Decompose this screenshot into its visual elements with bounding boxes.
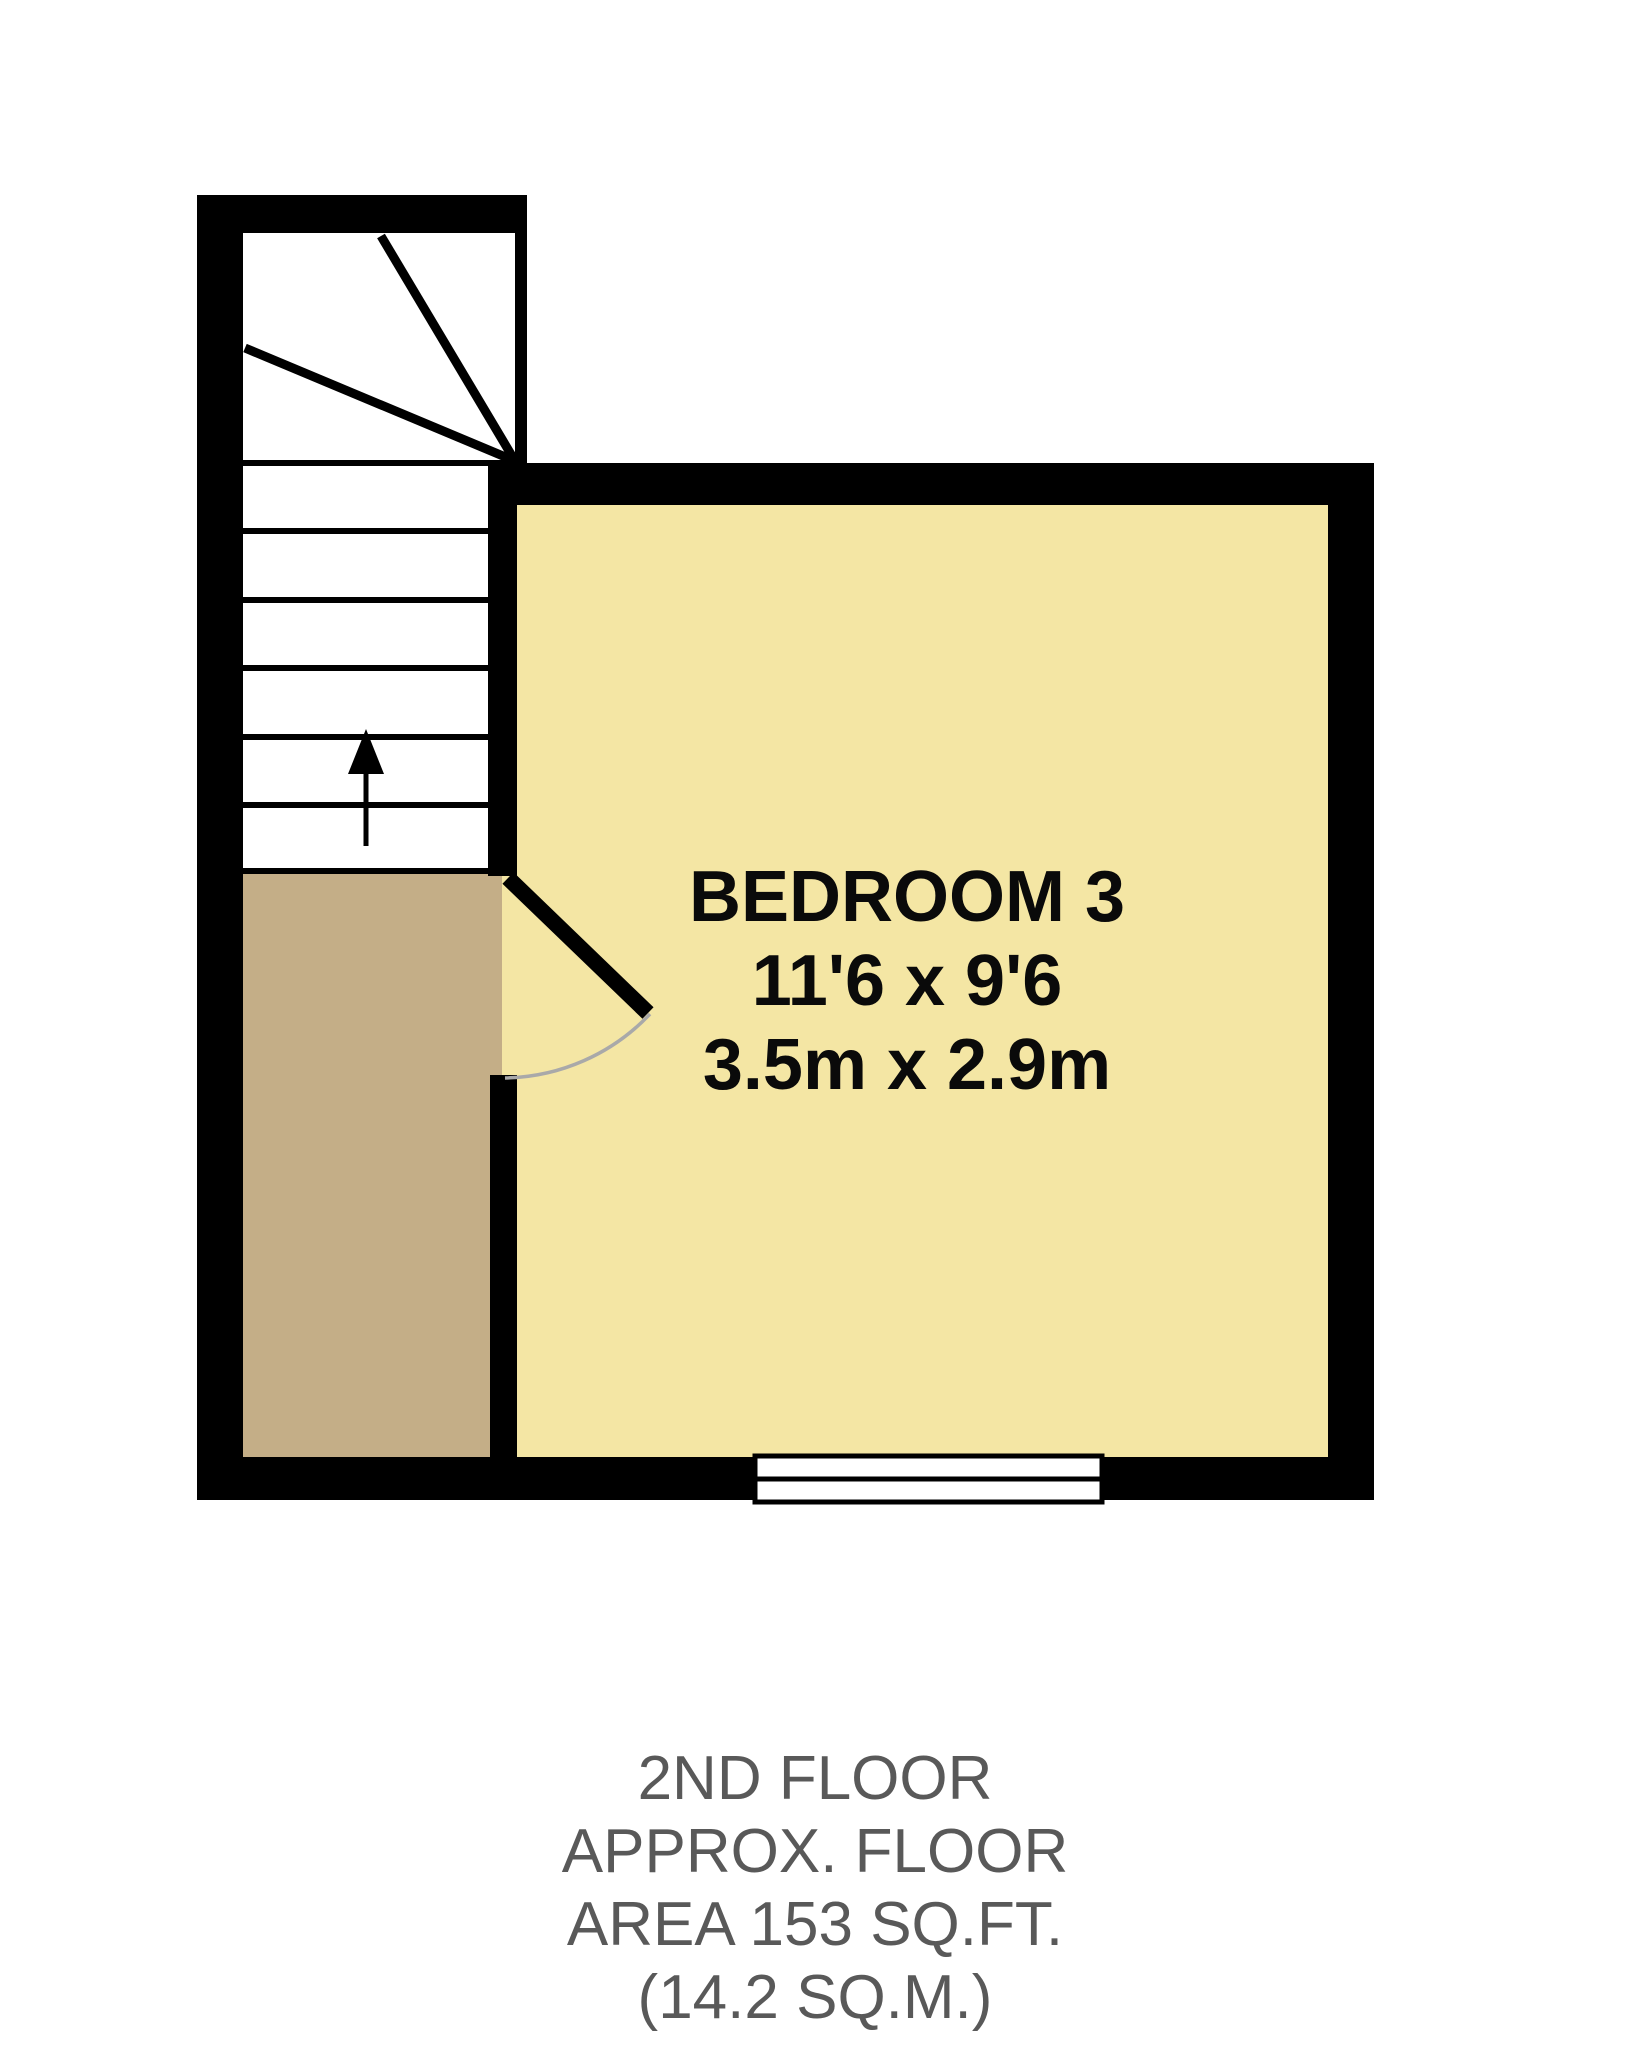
- floorplan-canvas: BEDROOM 3 11'6 x 9'6 3.5m x 2.9m 2ND FLO…: [0, 0, 1629, 2048]
- caption-area-sqm: (14.2 SQ.M.): [562, 1961, 1068, 2034]
- window: [755, 1456, 1102, 1502]
- caption-approx: APPROX. FLOOR: [562, 1815, 1068, 1888]
- room-name: BEDROOM 3: [689, 855, 1125, 939]
- stair-treads: [243, 463, 515, 871]
- room-dimensions-metric: 3.5m x 2.9m: [689, 1023, 1125, 1107]
- stairs-up-arrow-icon: [348, 729, 384, 846]
- room-dimensions-imperial: 11'6 x 9'6: [689, 939, 1125, 1023]
- winder-line: [245, 348, 515, 461]
- caption-area-sqft: AREA 153 SQ.FT.: [562, 1888, 1068, 1961]
- floor-caption: 2ND FLOOR APPROX. FLOOR AREA 153 SQ.FT. …: [562, 1742, 1068, 2034]
- door-swing-arc: [505, 1014, 650, 1078]
- winder-treads: [245, 236, 515, 461]
- room-label: BEDROOM 3 11'6 x 9'6 3.5m x 2.9m: [689, 855, 1125, 1107]
- caption-floor-name: 2ND FLOOR: [562, 1742, 1068, 1815]
- door-leaf: [508, 878, 648, 1013]
- winder-line: [381, 236, 515, 461]
